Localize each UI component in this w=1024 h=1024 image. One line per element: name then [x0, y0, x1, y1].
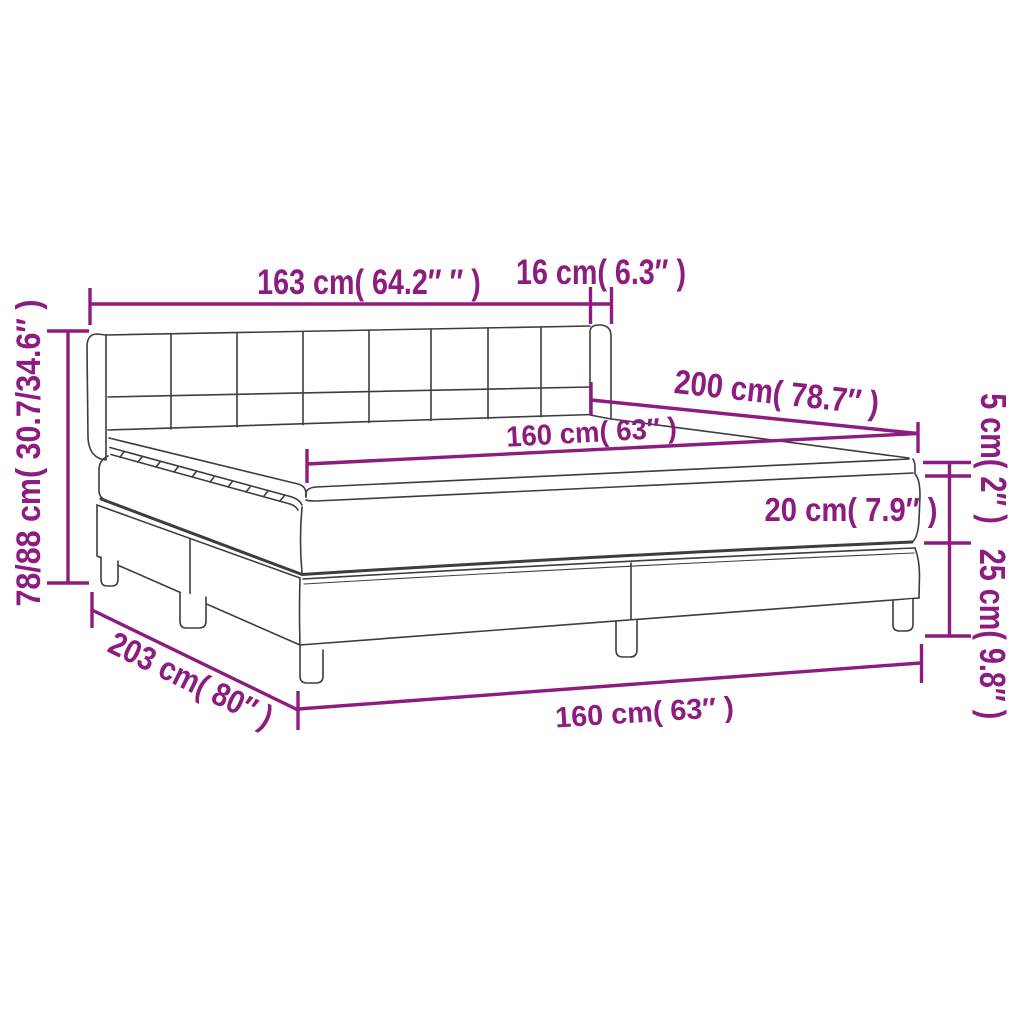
svg-text:16 cm( 6.3″ ): 16 cm( 6.3″ ) [516, 252, 686, 291]
svg-text:25 cm( 9.8″ ): 25 cm( 9.8″ ) [972, 549, 1013, 720]
svg-text:5 cm( 2″ ): 5 cm( 2″ ) [973, 393, 1014, 524]
svg-text:163 cm( 64.2″ ″ ): 163 cm( 64.2″ ″ ) [257, 262, 481, 301]
svg-text:20 cm( 7.9″ ): 20 cm( 7.9″ ) [764, 491, 937, 528]
svg-text:78/88 cm( 30.7/34.6″ ): 78/88 cm( 30.7/34.6″ ) [9, 299, 47, 606]
